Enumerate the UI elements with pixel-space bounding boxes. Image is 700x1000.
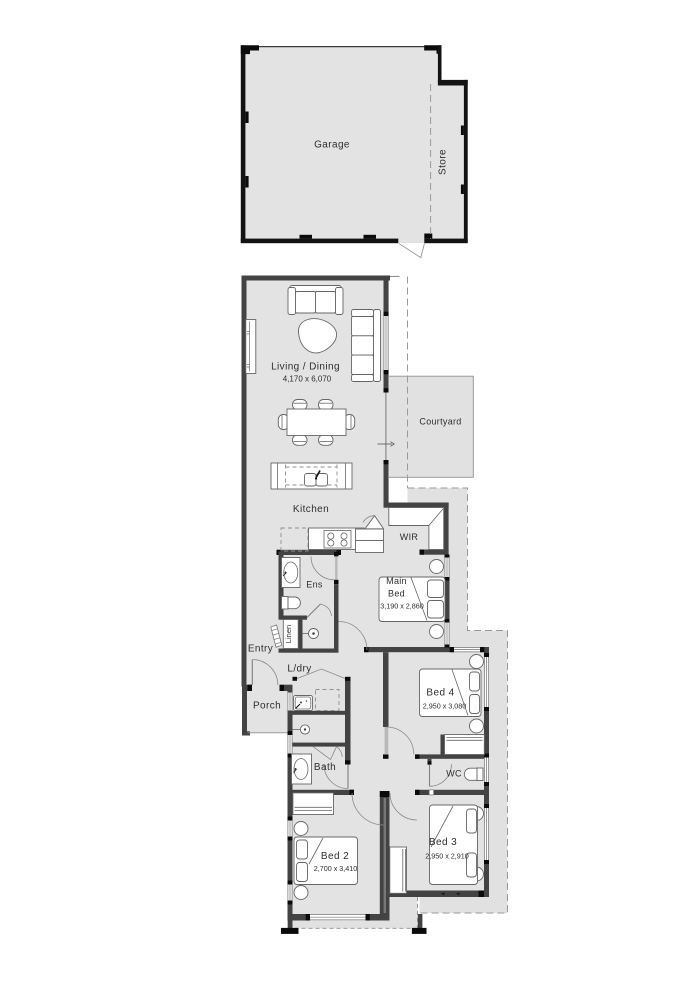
svg-text:Garage: Garage [314,140,350,151]
svg-text:Main: Main [386,576,407,586]
svg-text:Bed 4: Bed 4 [426,688,454,699]
svg-text:WC: WC [446,769,462,779]
svg-text:Bed 2: Bed 2 [321,851,349,862]
svg-text:Ens: Ens [306,580,323,590]
svg-text:2,950 x 3,080: 2,950 x 3,080 [423,702,467,711]
svg-text:Bed: Bed [388,589,405,599]
svg-text:2,700 x 3,410: 2,700 x 3,410 [314,864,358,873]
svg-text:Kitchen: Kitchen [293,504,329,515]
svg-text:Linen: Linen [284,625,293,643]
svg-text:Bed 3: Bed 3 [429,837,457,848]
svg-text:WIR: WIR [400,532,419,542]
svg-text:3,190 x 2,860: 3,190 x 2,860 [380,602,424,611]
svg-text:Store: Store [438,149,449,175]
svg-text:2,950 x 2,910: 2,950 x 2,910 [425,852,469,861]
svg-text:L/dry: L/dry [287,664,311,675]
svg-text:Porch: Porch [253,701,281,712]
svg-text:4,170 x 6,070: 4,170 x 6,070 [283,375,332,384]
svg-text:Courtyard: Courtyard [419,417,461,427]
svg-text:Living / Dining: Living / Dining [271,362,340,373]
svg-text:Bath: Bath [314,762,336,773]
svg-text:Entry: Entry [248,644,273,655]
